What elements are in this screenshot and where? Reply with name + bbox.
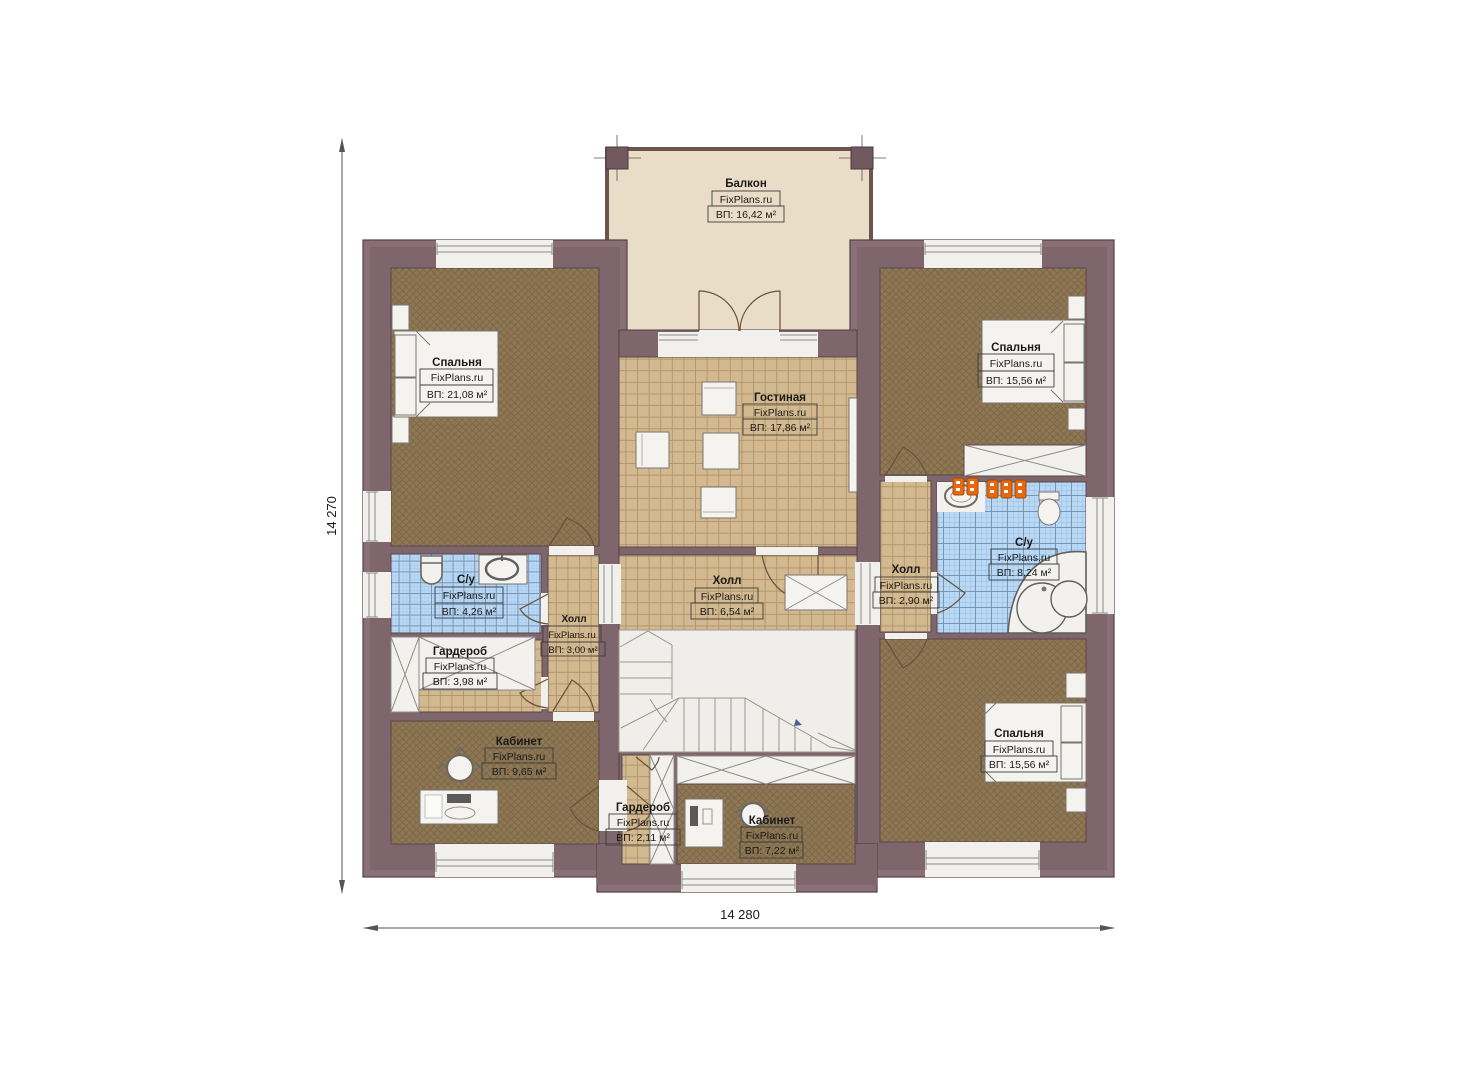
svg-text:ВП: 21,08 м²: ВП: 21,08 м² bbox=[427, 389, 488, 401]
svg-text:ВП: 16,42 м²: ВП: 16,42 м² bbox=[716, 209, 777, 221]
svg-text:ВП: 8,24 м²: ВП: 8,24 м² bbox=[997, 567, 1052, 579]
svg-text:Кабинет: Кабинет bbox=[749, 815, 796, 827]
svg-text:FixPlans.ru: FixPlans.ru bbox=[548, 630, 596, 641]
svg-text:Спальня: Спальня bbox=[994, 728, 1044, 740]
svg-text:Холл: Холл bbox=[713, 575, 742, 587]
svg-text:ВП: 15,56 м²: ВП: 15,56 м² bbox=[986, 375, 1047, 387]
svg-text:14 280: 14 280 bbox=[720, 907, 760, 922]
svg-text:Гардероб: Гардероб bbox=[433, 646, 487, 658]
svg-text:С/у: С/у bbox=[1015, 537, 1034, 549]
svg-text:Гостиная: Гостиная bbox=[754, 392, 806, 404]
svg-text:FixPlans.ru: FixPlans.ru bbox=[701, 591, 754, 603]
svg-text:Спальня: Спальня bbox=[432, 357, 482, 369]
svg-text:FixPlans.ru: FixPlans.ru bbox=[720, 194, 773, 206]
svg-text:ВП: 2,90 м²: ВП: 2,90 м² bbox=[879, 595, 934, 607]
svg-text:ВП: 7,22 м²: ВП: 7,22 м² bbox=[745, 845, 800, 857]
svg-text:FixPlans.ru: FixPlans.ru bbox=[754, 407, 807, 419]
svg-text:Холл: Холл bbox=[892, 564, 921, 576]
svg-text:Гардероб: Гардероб bbox=[616, 802, 670, 814]
svg-text:FixPlans.ru: FixPlans.ru bbox=[998, 552, 1051, 564]
svg-text:Спальня: Спальня bbox=[991, 342, 1041, 354]
svg-text:FixPlans.ru: FixPlans.ru bbox=[746, 830, 799, 842]
svg-text:FixPlans.ru: FixPlans.ru bbox=[617, 817, 670, 829]
svg-text:Балкон: Балкон bbox=[725, 178, 767, 190]
svg-text:ВП: 17,86 м²: ВП: 17,86 м² bbox=[750, 422, 811, 434]
svg-text:ВП: 2,11 м²: ВП: 2,11 м² bbox=[616, 832, 670, 844]
svg-text:ВП: 3,00 м²: ВП: 3,00 м² bbox=[548, 645, 597, 656]
svg-text:FixPlans.ru: FixPlans.ru bbox=[443, 590, 496, 602]
svg-text:С/у: С/у bbox=[457, 574, 476, 586]
svg-text:ВП: 6,54 м²: ВП: 6,54 м² bbox=[700, 606, 755, 618]
svg-text:14 270: 14 270 bbox=[324, 496, 339, 536]
svg-text:FixPlans.ru: FixPlans.ru bbox=[993, 744, 1046, 756]
svg-text:ВП: 4,26 м²: ВП: 4,26 м² bbox=[442, 606, 497, 618]
svg-text:Холл: Холл bbox=[561, 614, 586, 625]
svg-text:FixPlans.ru: FixPlans.ru bbox=[493, 751, 546, 763]
svg-text:FixPlans.ru: FixPlans.ru bbox=[434, 661, 487, 673]
svg-text:FixPlans.ru: FixPlans.ru bbox=[880, 580, 933, 592]
svg-text:ВП: 9,65 м²: ВП: 9,65 м² bbox=[492, 766, 547, 778]
svg-text:ВП: 3,98 м²: ВП: 3,98 м² bbox=[433, 676, 488, 688]
svg-text:Кабинет: Кабинет bbox=[496, 736, 543, 748]
svg-text:FixPlans.ru: FixPlans.ru bbox=[990, 358, 1043, 370]
svg-text:FixPlans.ru: FixPlans.ru bbox=[431, 372, 484, 384]
svg-text:ВП: 15,56 м²: ВП: 15,56 м² bbox=[989, 759, 1050, 771]
